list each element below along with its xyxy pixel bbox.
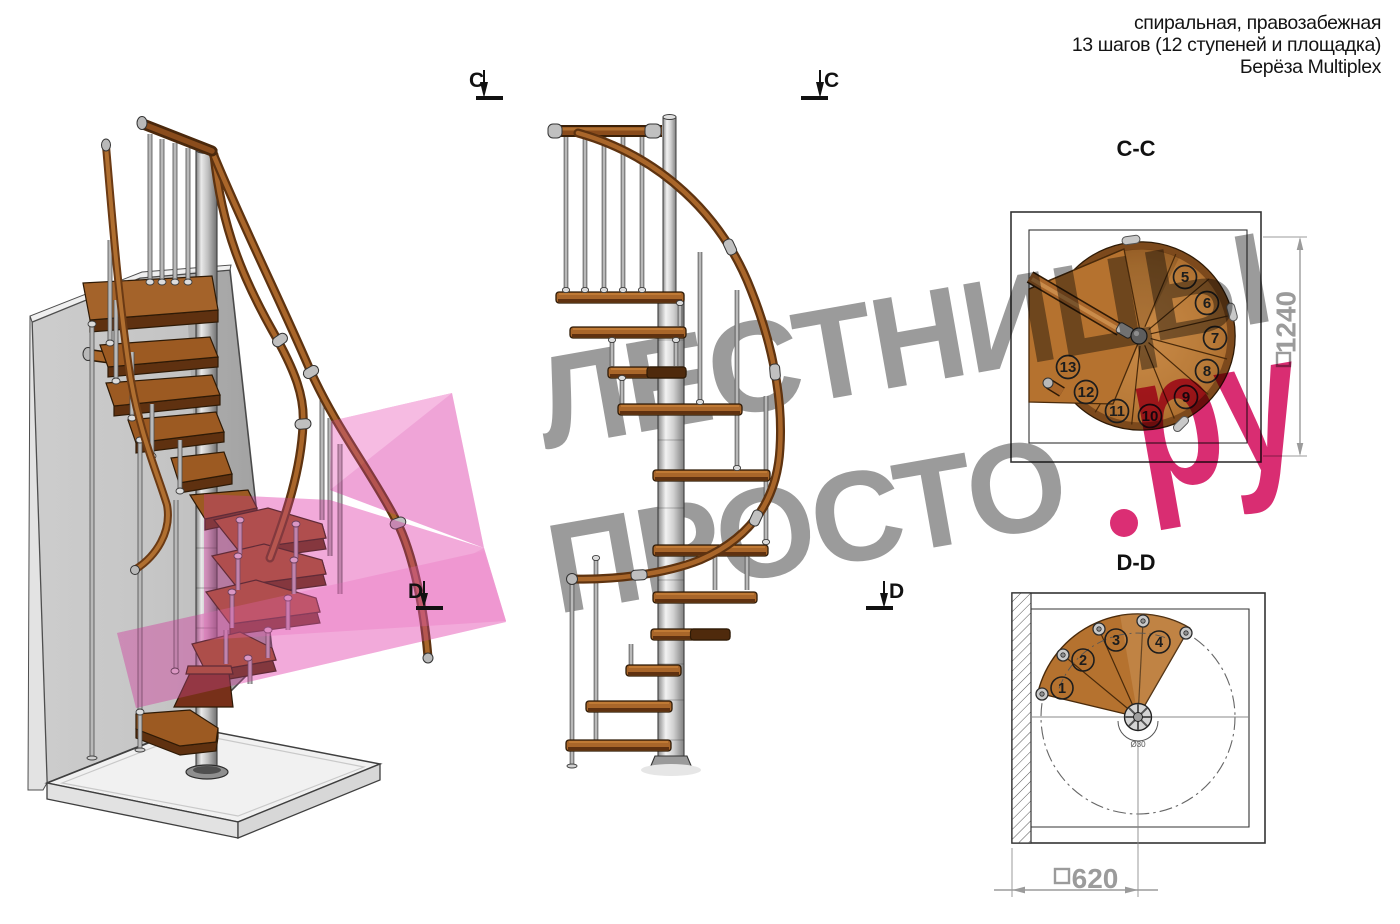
svg-text:спиральная, правозабежная: спиральная, правозабежная	[1134, 12, 1381, 34]
svg-text:D-D: D-D	[1116, 550, 1155, 575]
svg-text:13 шагов (12 ступеней и площад: 13 шагов (12 ступеней и площадка)	[1072, 34, 1381, 56]
svg-text:4: 4	[1155, 635, 1163, 651]
svg-text:11: 11	[1109, 403, 1125, 420]
svg-text:D: D	[889, 580, 904, 603]
svg-text:620: 620	[1072, 863, 1119, 894]
svg-text:Берёза Multiplex: Берёза Multiplex	[1240, 56, 1382, 78]
svg-text:Ø30: Ø30	[1130, 740, 1146, 749]
svg-text:12: 12	[1078, 384, 1095, 401]
svg-text:2: 2	[1079, 653, 1087, 669]
svg-text:D: D	[408, 580, 423, 603]
svg-text:C-C: C-C	[1116, 136, 1155, 161]
svg-text:1: 1	[1058, 681, 1066, 697]
svg-text:C: C	[824, 69, 839, 92]
svg-text:3: 3	[1112, 633, 1120, 649]
